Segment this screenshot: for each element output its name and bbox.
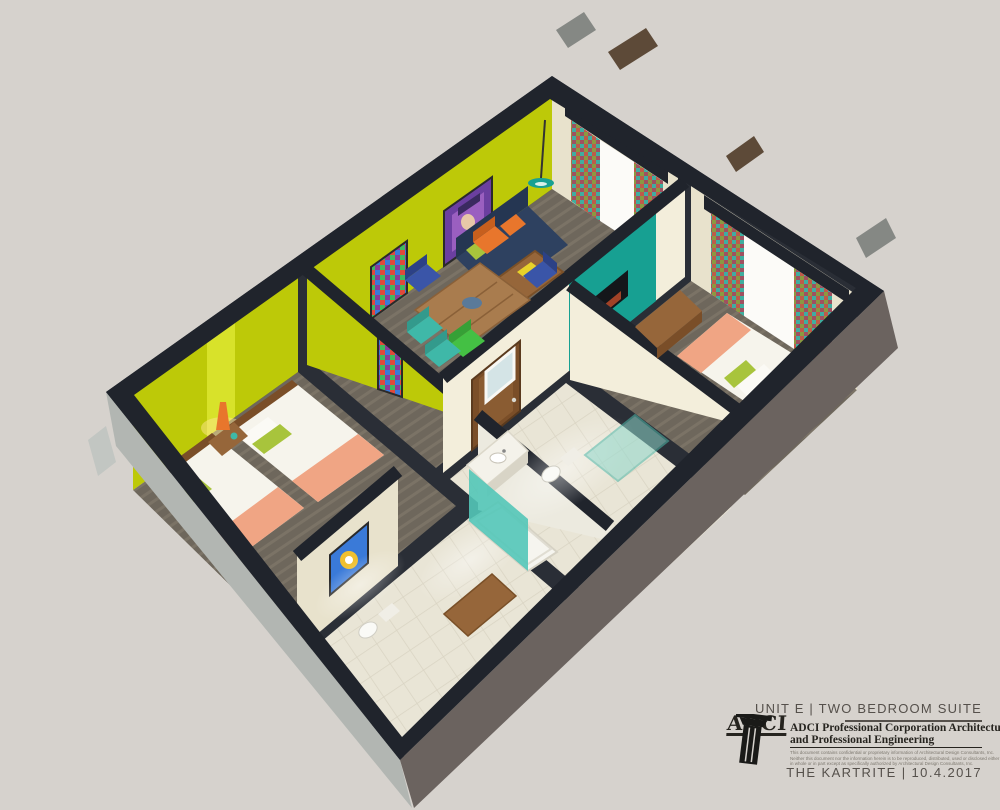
roof-post-brown — [608, 28, 658, 70]
firm-name: ADCI Professional Corporation Architectu… — [790, 723, 1000, 746]
floor-plan-rendering — [0, 0, 1000, 810]
exterior-pillar-grey — [856, 218, 896, 258]
column-icon — [727, 714, 777, 766]
roof-post-grey — [556, 12, 596, 48]
adci-logo: ADCI — [727, 714, 789, 792]
disclaimer-line1: This document contains confidential or p… — [790, 750, 999, 756]
firm-rule — [790, 747, 982, 748]
door-handle — [512, 398, 516, 402]
firm-name-line2: and Professional Engineering — [790, 735, 1000, 747]
firm-name-line1: ADCI Professional Corporation Architectu… — [790, 723, 1000, 735]
exterior-wall-step — [88, 426, 116, 476]
alarm-clock — [231, 433, 238, 440]
faucet — [502, 449, 506, 453]
unit-label: UNIT E | TWO BEDROOM SUITE — [755, 701, 982, 716]
exterior-pillar-brown — [726, 136, 764, 172]
architectural-rendering-page: UNIT E | TWO BEDROOM SUITE ADCI ADCI Pro… — [0, 0, 1000, 810]
table-bowl — [462, 297, 482, 309]
project-date-label: THE KARTRITE | 10.4.2017 — [786, 765, 982, 780]
